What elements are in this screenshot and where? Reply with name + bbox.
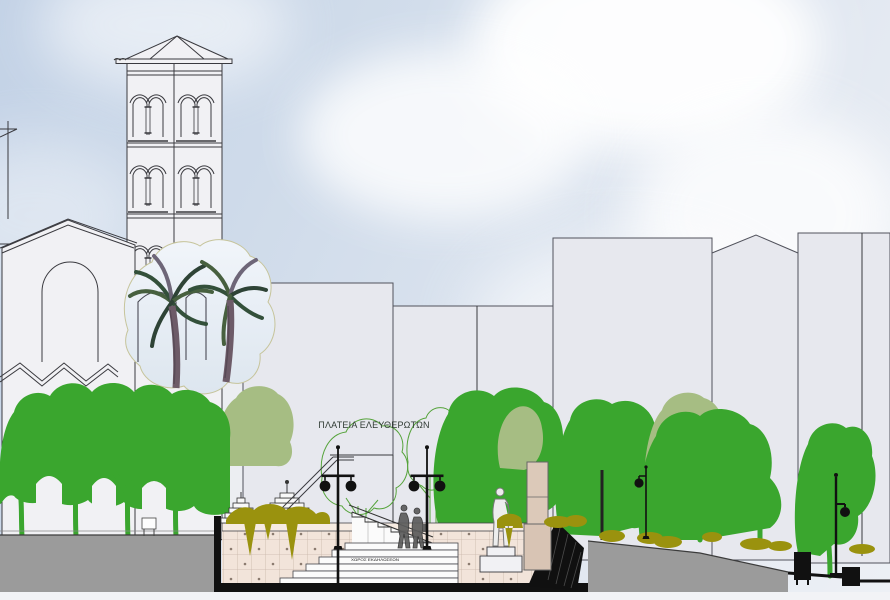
elevation-drawing-canvas: ΠΛΑΤΕΙΑ ΕΛΕΥΘΕΡΩΤΩΝ ΧΩΡΟΣ ΕΚΔΗΛΩΣΕΩΝ: [0, 0, 890, 600]
church-finial-cross: [0, 121, 17, 219]
drawing-linework: [0, 0, 890, 600]
tower-roof: [126, 36, 228, 59]
ground-strip: [0, 592, 890, 600]
memorial-pylon: [524, 462, 551, 570]
road-left: [0, 535, 218, 600]
wall-end-black: [214, 516, 221, 592]
lamp-1-pole-extension: [337, 548, 340, 584]
plaza-title-label: ΠΛΑΤΕΙΑ ΕΛΕΥΘΕΡΩΤΩΝ: [314, 420, 434, 430]
stairs-inscription-label: ΧΩΡΟΣ ΕΚΔΗΛΩΣΕΩΝ: [330, 557, 420, 562]
curb-block: [842, 567, 860, 586]
tower-eaves: [116, 59, 232, 64]
litter-bin: [794, 552, 811, 580]
litter-bin-legs: [797, 580, 808, 585]
